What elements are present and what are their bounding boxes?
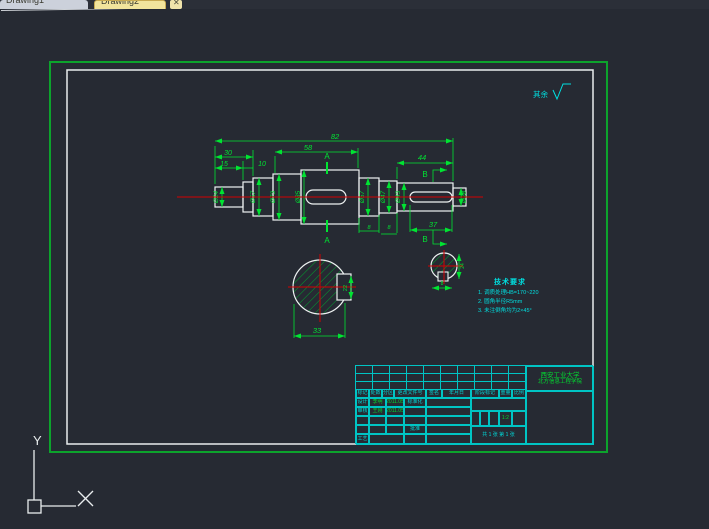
tb-design-date: 2011.05 [386, 398, 404, 407]
tb-header-doc: 更改文件号 [394, 389, 426, 398]
roughness-note: 其余 [533, 84, 571, 99]
tb-cell-empty [356, 425, 369, 434]
dim-groove-a: 8 [367, 225, 371, 231]
tb-header-sign: 签名 [426, 389, 442, 398]
tech-req-item-1: 1. 调质处理HB=170~220 [478, 289, 578, 298]
drawing-canvas[interactable]: 82 58 30 15 10 44 37 8 8 Ø24 Ø57 Ø73 Ø85… [0, 0, 709, 529]
tb-organization: 西安工业大学 北方信息工程学院 [526, 366, 594, 391]
tech-req-item-3: 3. 未注倒角均为2×45° [478, 307, 578, 316]
roughness-prefix: 其余 [533, 89, 548, 99]
ucs-icon: Y [28, 433, 93, 513]
tb-scale-value: 1:2 [499, 411, 512, 426]
tb-sheet-info: 共 1 张 第 1 张 [471, 426, 526, 445]
tb-cell-empty [426, 425, 471, 434]
tech-req-item-2: 2. 圆角半径R5mm [478, 298, 578, 307]
tb-cell-empty [404, 407, 426, 416]
tb-org-line2: 北方信息工程学院 [538, 380, 582, 385]
tb-std-label: 标准化 [404, 398, 426, 407]
tb-cell-empty [426, 407, 471, 416]
roughness-symbol-icon [553, 84, 571, 99]
tb-check-label: 审核 [356, 407, 369, 416]
dim-10: 10 [258, 161, 266, 168]
tb-header-count: 处数 [369, 389, 382, 398]
tb-approve-label: 批准 [404, 425, 426, 434]
tb-check-name: 王刚 [369, 407, 386, 416]
tb-cell-empty [404, 434, 426, 445]
tb-cell-empty [471, 398, 526, 411]
tb-part-name-cell [526, 391, 594, 445]
tb-header-date: 年月日 [442, 389, 471, 398]
dim-44: 44 [418, 153, 426, 162]
section-a-view: 22 33 [288, 254, 356, 338]
tb-check-date: 2011.05 [386, 407, 404, 416]
tb-stage-cell [480, 411, 489, 426]
file-tab-bar: Drawing1 Drawing2 ✕ [0, 0, 709, 9]
title-block: 标记 处数 分区 更改文件号 签名 年月日 设计 李明 2011.05 标准化 … [355, 365, 593, 444]
tb-cell-empty [356, 416, 369, 425]
tb-scale-label: 比例 [512, 389, 526, 398]
tb-header-zone: 分区 [382, 389, 394, 398]
close-icon: ✕ [173, 0, 180, 7]
cad-application-window: Drawing1 Drawing2 ✕ [0, 0, 709, 529]
tb-process-label: 工艺 [356, 434, 369, 445]
ucs-origin-box [28, 500, 41, 513]
dim-keyway-a-width: 22 [343, 285, 349, 291]
section-a-marker-bottom: A [324, 236, 330, 245]
technical-requirements: 技术要求 1. 调质处理HB=170~220 2. 圆角半径R5mm 3. 未注… [478, 277, 578, 316]
tb-design-name: 李明 [369, 398, 386, 407]
dim-b-flat: 24 [460, 263, 466, 269]
dim-groove-b: 8 [387, 225, 391, 231]
file-tab-inactive-label: Drawing1 [6, 0, 44, 5]
dim-30: 30 [224, 150, 232, 157]
tb-weight-label: 重量 [499, 389, 512, 398]
dim-33: 33 [313, 326, 322, 335]
tb-design-label: 设计 [356, 398, 369, 407]
tb-cell-empty [426, 398, 471, 407]
tb-header-mark: 标记 [356, 389, 369, 398]
tb-cell-empty [369, 416, 386, 425]
section-b-keyway-notch [438, 272, 448, 281]
file-tab-inactive[interactable]: Drawing1 [0, 0, 88, 9]
ucs-y-label: Y [33, 433, 42, 448]
tb-stage-cell [471, 411, 480, 426]
dim-37: 37 [429, 220, 438, 229]
dimensions: 82 58 30 15 10 44 37 8 8 Ø24 Ø57 Ø73 Ø85… [213, 132, 468, 245]
tech-req-title: 技术要求 [478, 277, 578, 287]
section-a-marker-top: A [324, 152, 330, 161]
section-b-marker-top: B [422, 170, 427, 179]
tb-cell-empty [404, 416, 426, 425]
tb-stage-cell [489, 411, 499, 426]
tb-stage-label: 阶段标记 [471, 389, 499, 398]
dim-58: 58 [304, 143, 313, 152]
revision-grid [356, 366, 527, 390]
file-tab-active-label: Drawing2 [101, 0, 139, 6]
tb-cell-empty [426, 416, 471, 425]
dim-82: 82 [331, 132, 340, 141]
tb-org-line1: 西安工业大学 [541, 373, 580, 378]
dim-b-key: 8 [441, 281, 444, 287]
tb-cell-empty [369, 434, 404, 445]
section-b-view: 24 8 [428, 250, 466, 288]
tb-cell-empty [512, 411, 526, 426]
tb-cell-empty [369, 425, 386, 434]
dim-15: 15 [220, 161, 228, 168]
tb-cell-empty [386, 425, 404, 434]
tb-cell-empty [426, 434, 471, 445]
file-tab-active[interactable]: Drawing2 [94, 0, 166, 9]
tb-cell-empty [386, 416, 404, 425]
tab-close-button[interactable]: ✕ [170, 0, 182, 9]
section-b-marker-bottom: B [422, 235, 427, 244]
